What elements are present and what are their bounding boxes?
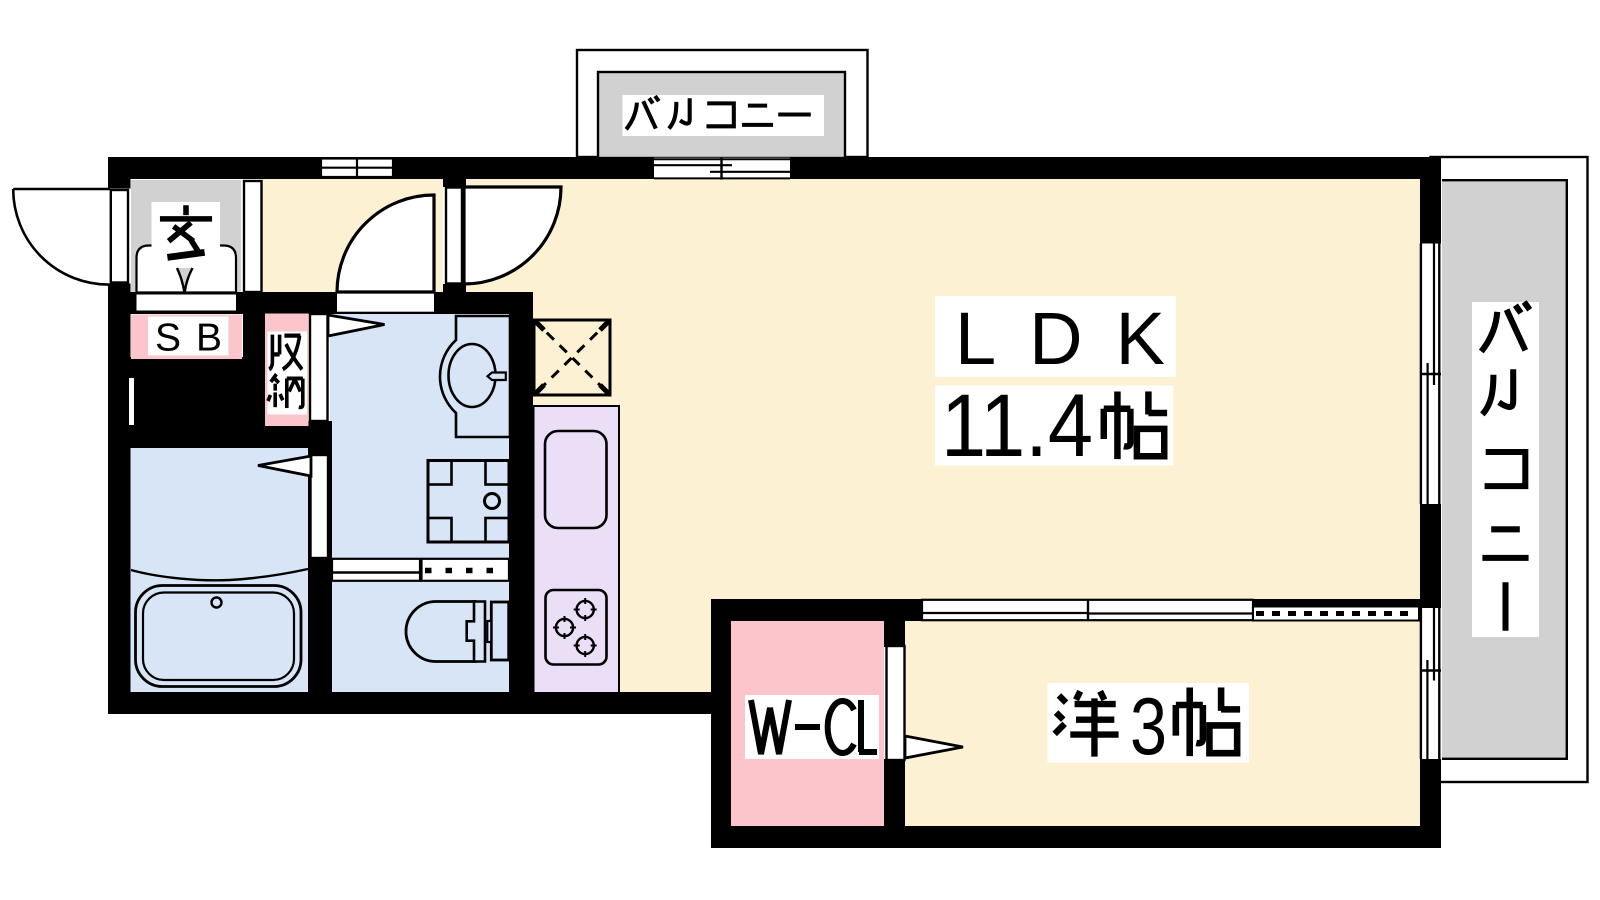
svg-text:11.4: 11.4 (941, 375, 1093, 475)
svg-text:SB: SB (155, 317, 237, 360)
svg-text:LDK: LDK (955, 297, 1198, 380)
svg-text:3: 3 (1130, 682, 1167, 772)
